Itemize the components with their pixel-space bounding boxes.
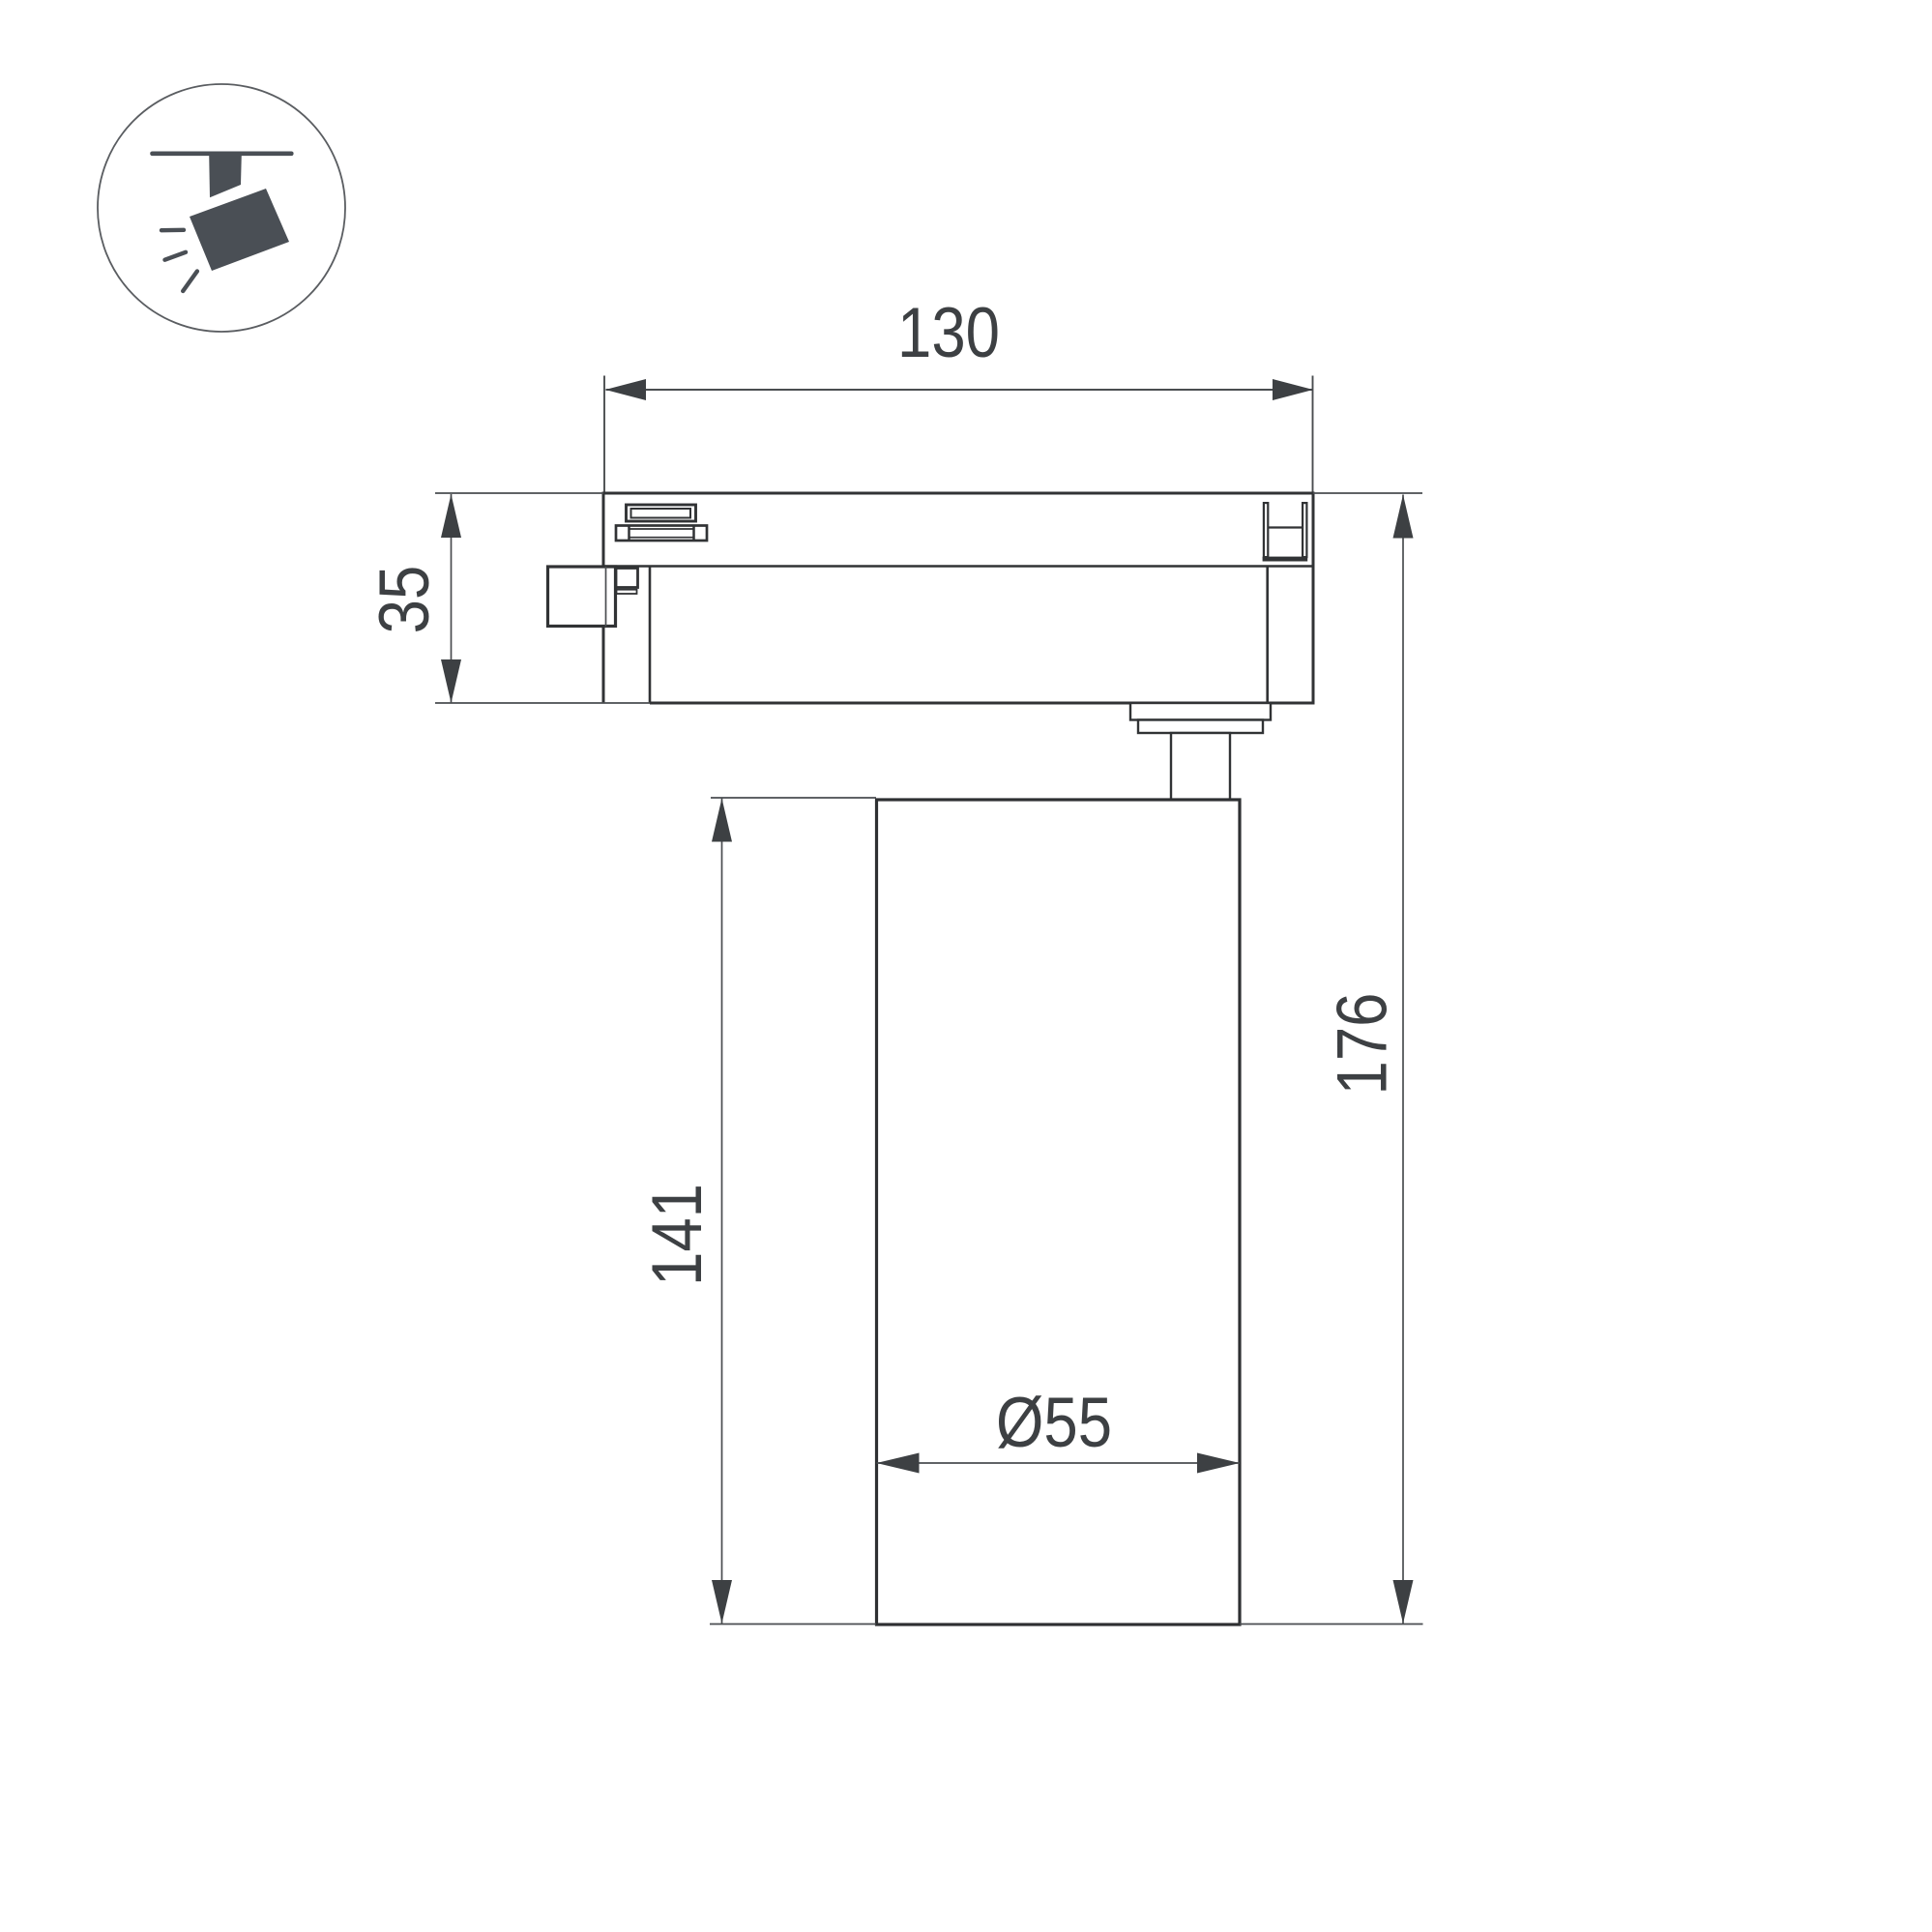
svg-text:35: 35 — [366, 566, 444, 634]
svg-text:176: 176 — [1323, 993, 1401, 1096]
svg-text:141: 141 — [638, 1184, 717, 1286]
svg-text:130: 130 — [897, 294, 1000, 372]
svg-text:Ø55: Ø55 — [996, 1384, 1112, 1462]
